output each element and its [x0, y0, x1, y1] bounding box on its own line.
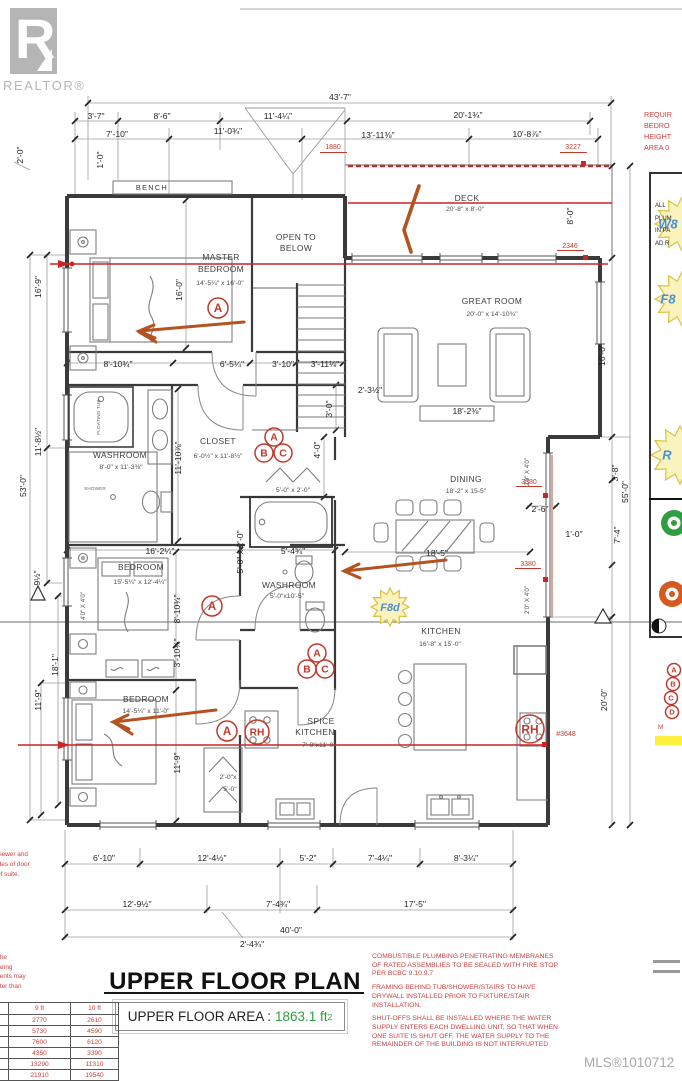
plan-label: 1'-0"	[565, 529, 582, 539]
plan-label: OPEN TO	[276, 232, 316, 242]
plan-label: 3'-8"	[610, 464, 620, 481]
plan-label: 3380	[520, 561, 536, 568]
load-table-cell	[0, 1070, 9, 1081]
plan-label: 3'-11⅛"	[311, 359, 339, 369]
plan-label: 8'-10¾"	[172, 594, 182, 623]
table-row: 27702610	[0, 1015, 119, 1026]
plan-label: BEDROOM	[123, 694, 169, 704]
right-panel-note-fragment: M	[658, 724, 663, 731]
table-row: 43503390	[0, 1048, 119, 1059]
gray-bar-2	[653, 970, 680, 973]
plan-label: 14'-5¼" x 16'-0"	[196, 280, 244, 287]
plan-label: 20'-1¾"	[453, 110, 482, 120]
load-table-cell: 2610	[71, 1015, 119, 1026]
plan-label: 5'-0" x 2'-0"	[235, 530, 245, 573]
floor-area-box: UPPER FLOOR AREA : 1863.1 ft 2	[115, 1002, 345, 1031]
load-table-cell: 13290	[9, 1059, 71, 1070]
circled-tag-letter: D	[669, 708, 675, 717]
plan-label: 8'-0"	[565, 207, 575, 224]
plan-label: 5'-0" x 2'-0"	[276, 487, 311, 494]
plan-label: 2'-0"x	[220, 774, 238, 781]
circled-tag-letter: A	[208, 601, 216, 613]
load-table-cell: 4590	[71, 1026, 119, 1037]
plan-label: 20'-0"	[599, 689, 609, 711]
plan-label: CLOSET	[200, 436, 236, 446]
plan-label: 3'-10¾"	[172, 638, 182, 667]
plan-label: 5'-0"x10'-5"	[270, 593, 305, 600]
plan-label: 18'-2⅜"	[452, 406, 481, 416]
foundation-note-line: d. Any point load greater than	[0, 982, 138, 992]
plan-label: 18'-1"	[50, 654, 60, 676]
gray-bar-1	[653, 960, 680, 963]
plan-label: SPICE	[307, 716, 334, 726]
circled-tag-letter: RH	[250, 728, 265, 739]
plan-label: 8'-10¾"	[103, 359, 132, 369]
plan-label: 3'-7"	[87, 111, 104, 121]
foundation-note-line: convenience only. Bearing	[0, 963, 138, 973]
plan-label: 10'-8⅞"	[512, 129, 541, 139]
red-header-line: REQUIR	[644, 109, 682, 120]
table-row: 57304590	[0, 1026, 119, 1037]
box-text-line: AD R	[655, 238, 682, 251]
load-table-cell	[0, 1026, 9, 1037]
yellow-highlight	[655, 736, 682, 745]
circled-tag-letter: C	[279, 449, 287, 460]
plan-label: 3'-10"	[272, 359, 294, 369]
plan-label: 2'0" X 4'0"	[524, 586, 531, 614]
plan-label: 14'-5¼" x 11'-0"	[123, 708, 171, 715]
plan-label: MASTER	[202, 252, 239, 262]
red-header-line: AREA 0	[644, 142, 682, 153]
plan-label: 11'-4¼"	[264, 111, 292, 121]
circled-tag-letter: A	[223, 726, 231, 738]
plan-label: 20'-0" x 14'-10¾"	[466, 311, 518, 318]
plan-label: 40'-0"	[280, 925, 302, 935]
bench-seat	[113, 181, 232, 194]
code-note-paragraph: SHUT-OFFS SHALL BE INSTALLED WHERE THE W…	[372, 1015, 564, 1050]
load-table-cell: 7600	[9, 1037, 71, 1048]
load-table-cell	[0, 1037, 9, 1048]
plan-label: DINING	[450, 474, 482, 484]
mls-number: MLS®1010712	[584, 1055, 682, 1070]
floor-area-value: 1863.1 ft	[275, 1009, 328, 1024]
red-header-line: BEDRO	[644, 120, 682, 131]
realtor-wordmark: REALTOR®	[3, 78, 93, 93]
plan-label: 11'-9"	[33, 689, 43, 710]
plan-label: BEDROOM	[118, 562, 164, 572]
load-table-cell: 3390	[71, 1048, 119, 1059]
plan-label: 7'-10"	[106, 129, 128, 139]
plan-label: 11'-10⅞"	[173, 441, 183, 474]
plan-label: 6'-10"	[93, 853, 115, 863]
plan-label: 5'-0"	[223, 786, 237, 793]
plan-label: KITCHEN	[421, 626, 461, 636]
right-panel-box-text: ALLPLUMIN PAAD R	[655, 200, 682, 250]
plan-label: 13'-11⅜"	[361, 130, 394, 140]
plan-label: 5'-2"	[299, 853, 316, 863]
door-note-line: oor of suite.	[0, 870, 86, 880]
plan-label: 8'-3¼"	[454, 853, 478, 863]
plan-label: 15'-5¼" x 12'-4¼"	[113, 579, 167, 586]
plan-label: 7'-0"x11'-0"	[302, 742, 336, 749]
load-table-header-cell: 10 ft	[71, 1003, 119, 1015]
plan-label: FLOATING TUB	[96, 399, 101, 434]
door-note-clipped: oor viewer andth sides of dooroor of sui…	[0, 850, 86, 880]
load-table-cell: 6120	[71, 1037, 119, 1048]
foundation-note-line: manufacturers documents may	[0, 972, 138, 982]
foundation-note-clipped: gh to the foundation, theconvenience onl…	[0, 953, 138, 1001]
plan-label: 2'-3½"	[358, 385, 382, 395]
load-table-cell: 19540	[71, 1070, 119, 1081]
title-underline	[104, 992, 364, 994]
plan-label: 4'0" X 4'0"	[80, 592, 87, 620]
plan-label: 16'-0"	[174, 279, 184, 301]
plan-label: 12'-4½"	[197, 853, 226, 863]
plan-label: 16'-9"	[33, 276, 43, 298]
circled-tag-letter: B	[303, 665, 310, 676]
load-table: 9 ft10 ft2770261057304590760061204350339…	[0, 1002, 119, 1081]
circled-tag-letter: C	[668, 694, 674, 703]
plan-label: 7'-4¾"	[266, 899, 290, 909]
floor-plan-drawing: F8dW8F8R BENCHOPEN TOBELOWMASTERBEDROOM1…	[0, 0, 682, 1074]
plan-label: #3648	[556, 731, 576, 738]
dimension-lines	[14, 96, 630, 940]
plan-label: BENCH	[136, 183, 168, 192]
circled-tag-letter: A	[270, 433, 278, 444]
plan-label: 53'-0"	[18, 475, 28, 497]
plan-label: 6'-0½" x 11'-8½"	[194, 452, 243, 460]
load-table-cell	[0, 1015, 9, 1026]
plan-label: 11'-0¾"	[214, 126, 242, 136]
plan-label: 9½"	[32, 571, 42, 586]
plan-label: 4'-0"	[312, 441, 322, 458]
box-text-line: IN PA	[655, 225, 682, 238]
circled-tag-letter: RH	[521, 722, 538, 736]
plan-label: 55'-0"	[620, 481, 630, 503]
table-row: 9 ft10 ft	[0, 1003, 119, 1015]
code-note-paragraph: FRAMING BEHIND TUB/SHOWER/STAIRS TO HAVE…	[372, 984, 564, 1010]
red-header-line: HEIGHT	[644, 131, 682, 142]
plan-label: 11'-8½"	[33, 428, 43, 456]
plan-label: WASHROOM	[262, 580, 316, 590]
plan-label: DECK	[455, 193, 480, 203]
plan-label: 12'-9½"	[122, 899, 151, 909]
right-panel-divider	[649, 498, 682, 500]
plan-label: 6'-5¼"	[220, 359, 244, 369]
table-row: 2191019540	[0, 1070, 119, 1081]
plan-label: 43'-7"	[329, 92, 351, 102]
code-notes: COMBUSTIBLE PLUMBING PENETRATING MEMBRAN…	[372, 953, 564, 1055]
door-note-line: th sides of door	[0, 860, 86, 870]
table-row: 1329011310	[0, 1059, 119, 1070]
plan-label: 2'-4¾"	[240, 939, 264, 949]
plan-label: 1'-0"	[95, 151, 105, 168]
plan-label: 3227	[565, 144, 581, 151]
realtor-logo-triangle	[37, 49, 52, 71]
plan-label: 18'-2" x 15-5"	[446, 488, 487, 495]
plan-label: 8'-0" x 11'-3⅜"	[99, 464, 143, 471]
plan-label: 5'-4¾"	[281, 546, 305, 556]
box-text-line: ALL	[655, 200, 682, 213]
plan-label: 2'-6"	[531, 504, 548, 514]
plan-label: WASHROOM	[93, 450, 147, 460]
deck-outline	[252, 165, 612, 288]
right-panel-red-header: REQUIRBEDROHEIGHTAREA 0	[644, 109, 682, 153]
load-table-cell: 21910	[9, 1070, 71, 1081]
load-table-cell: 2770	[9, 1015, 71, 1026]
plan-label: 3380	[521, 479, 537, 486]
circled-tag-letter: B	[670, 680, 676, 689]
plan-label: 8'-6"	[153, 111, 170, 121]
plan-label: 16'-0"	[597, 344, 607, 366]
plan-label: GREAT ROOM	[462, 296, 522, 306]
floor-plan-sheet: { "colors": { "annotation_red": "#c0392b…	[0, 0, 682, 1074]
plan-label: BELOW	[280, 243, 312, 253]
plan-label: 16'-8" x 15'-0"	[419, 641, 461, 648]
circled-tag-letter: C	[321, 665, 329, 676]
plan-label: 16'-2¼"	[145, 546, 174, 556]
plan-label: 20'-8" x 8'-0"	[446, 206, 485, 213]
load-table-header-cell: 9 ft	[9, 1003, 71, 1015]
table-row: 76006120	[0, 1037, 119, 1048]
circled-tag-letter: A	[214, 303, 222, 315]
floor-area-label: UPPER FLOOR AREA :	[128, 1009, 271, 1024]
plan-label: 18'-5"	[426, 548, 448, 558]
plan-label: 11'-9"	[172, 752, 182, 773]
load-table-cell	[0, 1048, 9, 1059]
plan-label: 2346	[562, 243, 578, 250]
plan-label: 3'-0"	[324, 400, 334, 417]
circled-tag-letter: A	[313, 649, 321, 660]
door-note-line: oor viewer and	[0, 850, 86, 860]
plan-label: KITCHEN	[295, 727, 335, 737]
starburst-tag-text: F8d	[380, 602, 400, 614]
box-text-line: PLUM	[655, 213, 682, 226]
plan-label: 7'-4¼"	[368, 853, 392, 863]
load-table-cell: 4350	[9, 1048, 71, 1059]
plan-label: 2'-0"	[15, 146, 25, 163]
load-table-cell	[0, 1059, 9, 1070]
load-table-cell: 5730	[9, 1026, 71, 1037]
foundation-note-line: gh to the foundation, the	[0, 953, 138, 963]
circled-tag-letter: B	[260, 449, 267, 460]
plan-label: 7'-4"	[612, 526, 622, 543]
plan-label: BEDROOM	[198, 264, 244, 274]
floor-area-exponent: 2	[328, 1012, 333, 1022]
circled-tag-letter: A	[671, 666, 677, 675]
code-note-paragraph: COMBUSTIBLE PLUMBING PENETRATING MEMBRAN…	[372, 953, 564, 979]
realtor-logo-icon: R	[10, 8, 57, 74]
load-table-header-cell	[0, 1003, 9, 1015]
dimension-ticks	[27, 100, 633, 940]
plan-label: 17'-5"	[404, 899, 426, 909]
plan-label: 1880	[325, 144, 341, 151]
orange-markup-arrows	[113, 186, 446, 734]
load-table-cell: 11310	[71, 1059, 119, 1070]
foundation-note-line: num 2 ply post.	[0, 991, 138, 1001]
plan-label: SHOWER	[84, 486, 106, 491]
